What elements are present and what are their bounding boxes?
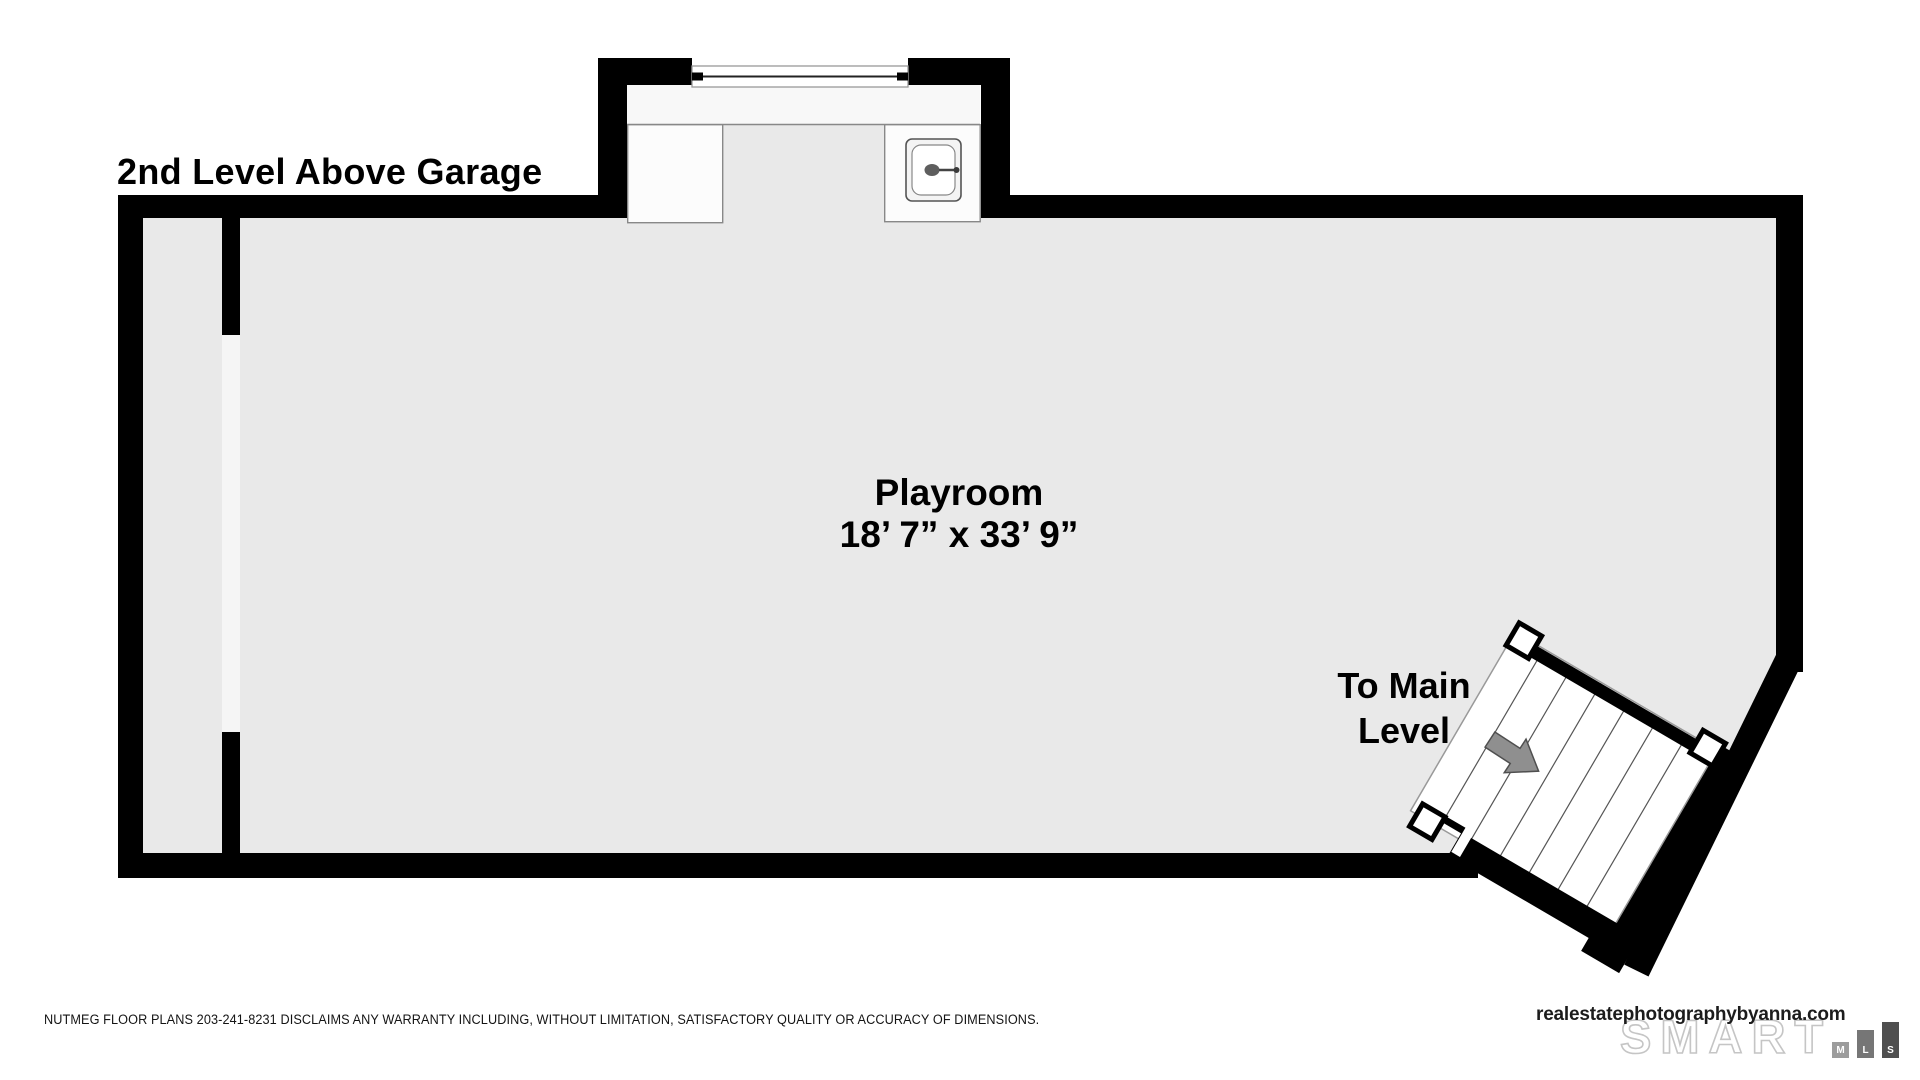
stair-destination-label: To Main Level bbox=[1337, 663, 1470, 753]
mls-bar-l: L bbox=[1857, 1030, 1874, 1058]
wall-closet-stub-lower bbox=[222, 732, 240, 853]
mls-letter: L bbox=[1862, 1045, 1868, 1056]
wall-bottom bbox=[118, 853, 1478, 878]
wall-left bbox=[118, 195, 143, 878]
wall-top-left bbox=[118, 195, 598, 218]
mls-letter: M bbox=[1836, 1045, 1844, 1056]
room-dimensions: 18’ 7” x 33’ 9” bbox=[840, 514, 1079, 556]
wall-top-right bbox=[981, 195, 1803, 218]
wall-closet-stub-upper bbox=[222, 218, 240, 335]
counter-band bbox=[627, 85, 980, 124]
closet-opening bbox=[222, 335, 240, 732]
sink-icon bbox=[906, 139, 961, 201]
mls-bar-s: S bbox=[1882, 1022, 1899, 1058]
wall-right bbox=[1776, 195, 1803, 672]
mls-bar-m: M bbox=[1832, 1042, 1849, 1058]
photographer-website: realestatephotographybyanna.com bbox=[1536, 1004, 1846, 1026]
window-icon bbox=[692, 66, 908, 87]
wall-alcove-left bbox=[598, 58, 627, 218]
disclaimer-text: NUTMEG FLOOR PLANS 203-241-8231 DISCLAIM… bbox=[44, 1012, 1039, 1027]
wall-alcove-right bbox=[981, 58, 1010, 218]
wall-alcove-top-left bbox=[627, 58, 692, 85]
room-label: Playroom 18’ 7” x 33’ 9” bbox=[840, 472, 1079, 556]
cabinet-left bbox=[628, 125, 723, 223]
room-name: Playroom bbox=[840, 472, 1079, 514]
mls-letter: S bbox=[1887, 1045, 1894, 1056]
page-title: 2nd Level Above Garage bbox=[117, 151, 542, 193]
